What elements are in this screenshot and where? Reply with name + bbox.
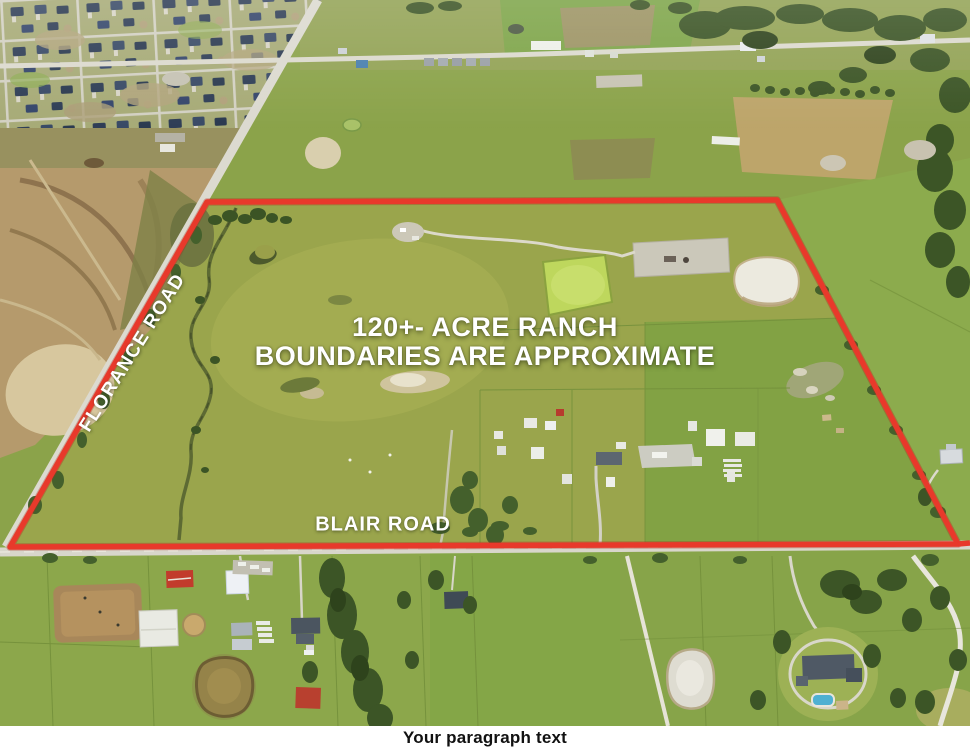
caption-text: Your paragraph text [403,728,567,748]
caption-bar: Your paragraph text [0,726,970,749]
aerial-photo: 120+- ACRE RANCH BOUNDARIES ARE APPROXIM… [0,0,970,749]
road-label-blair: BLAIR ROAD [315,514,451,537]
gravel-pad [633,238,730,277]
estate-house [778,627,878,721]
swimming-pool [812,694,834,706]
